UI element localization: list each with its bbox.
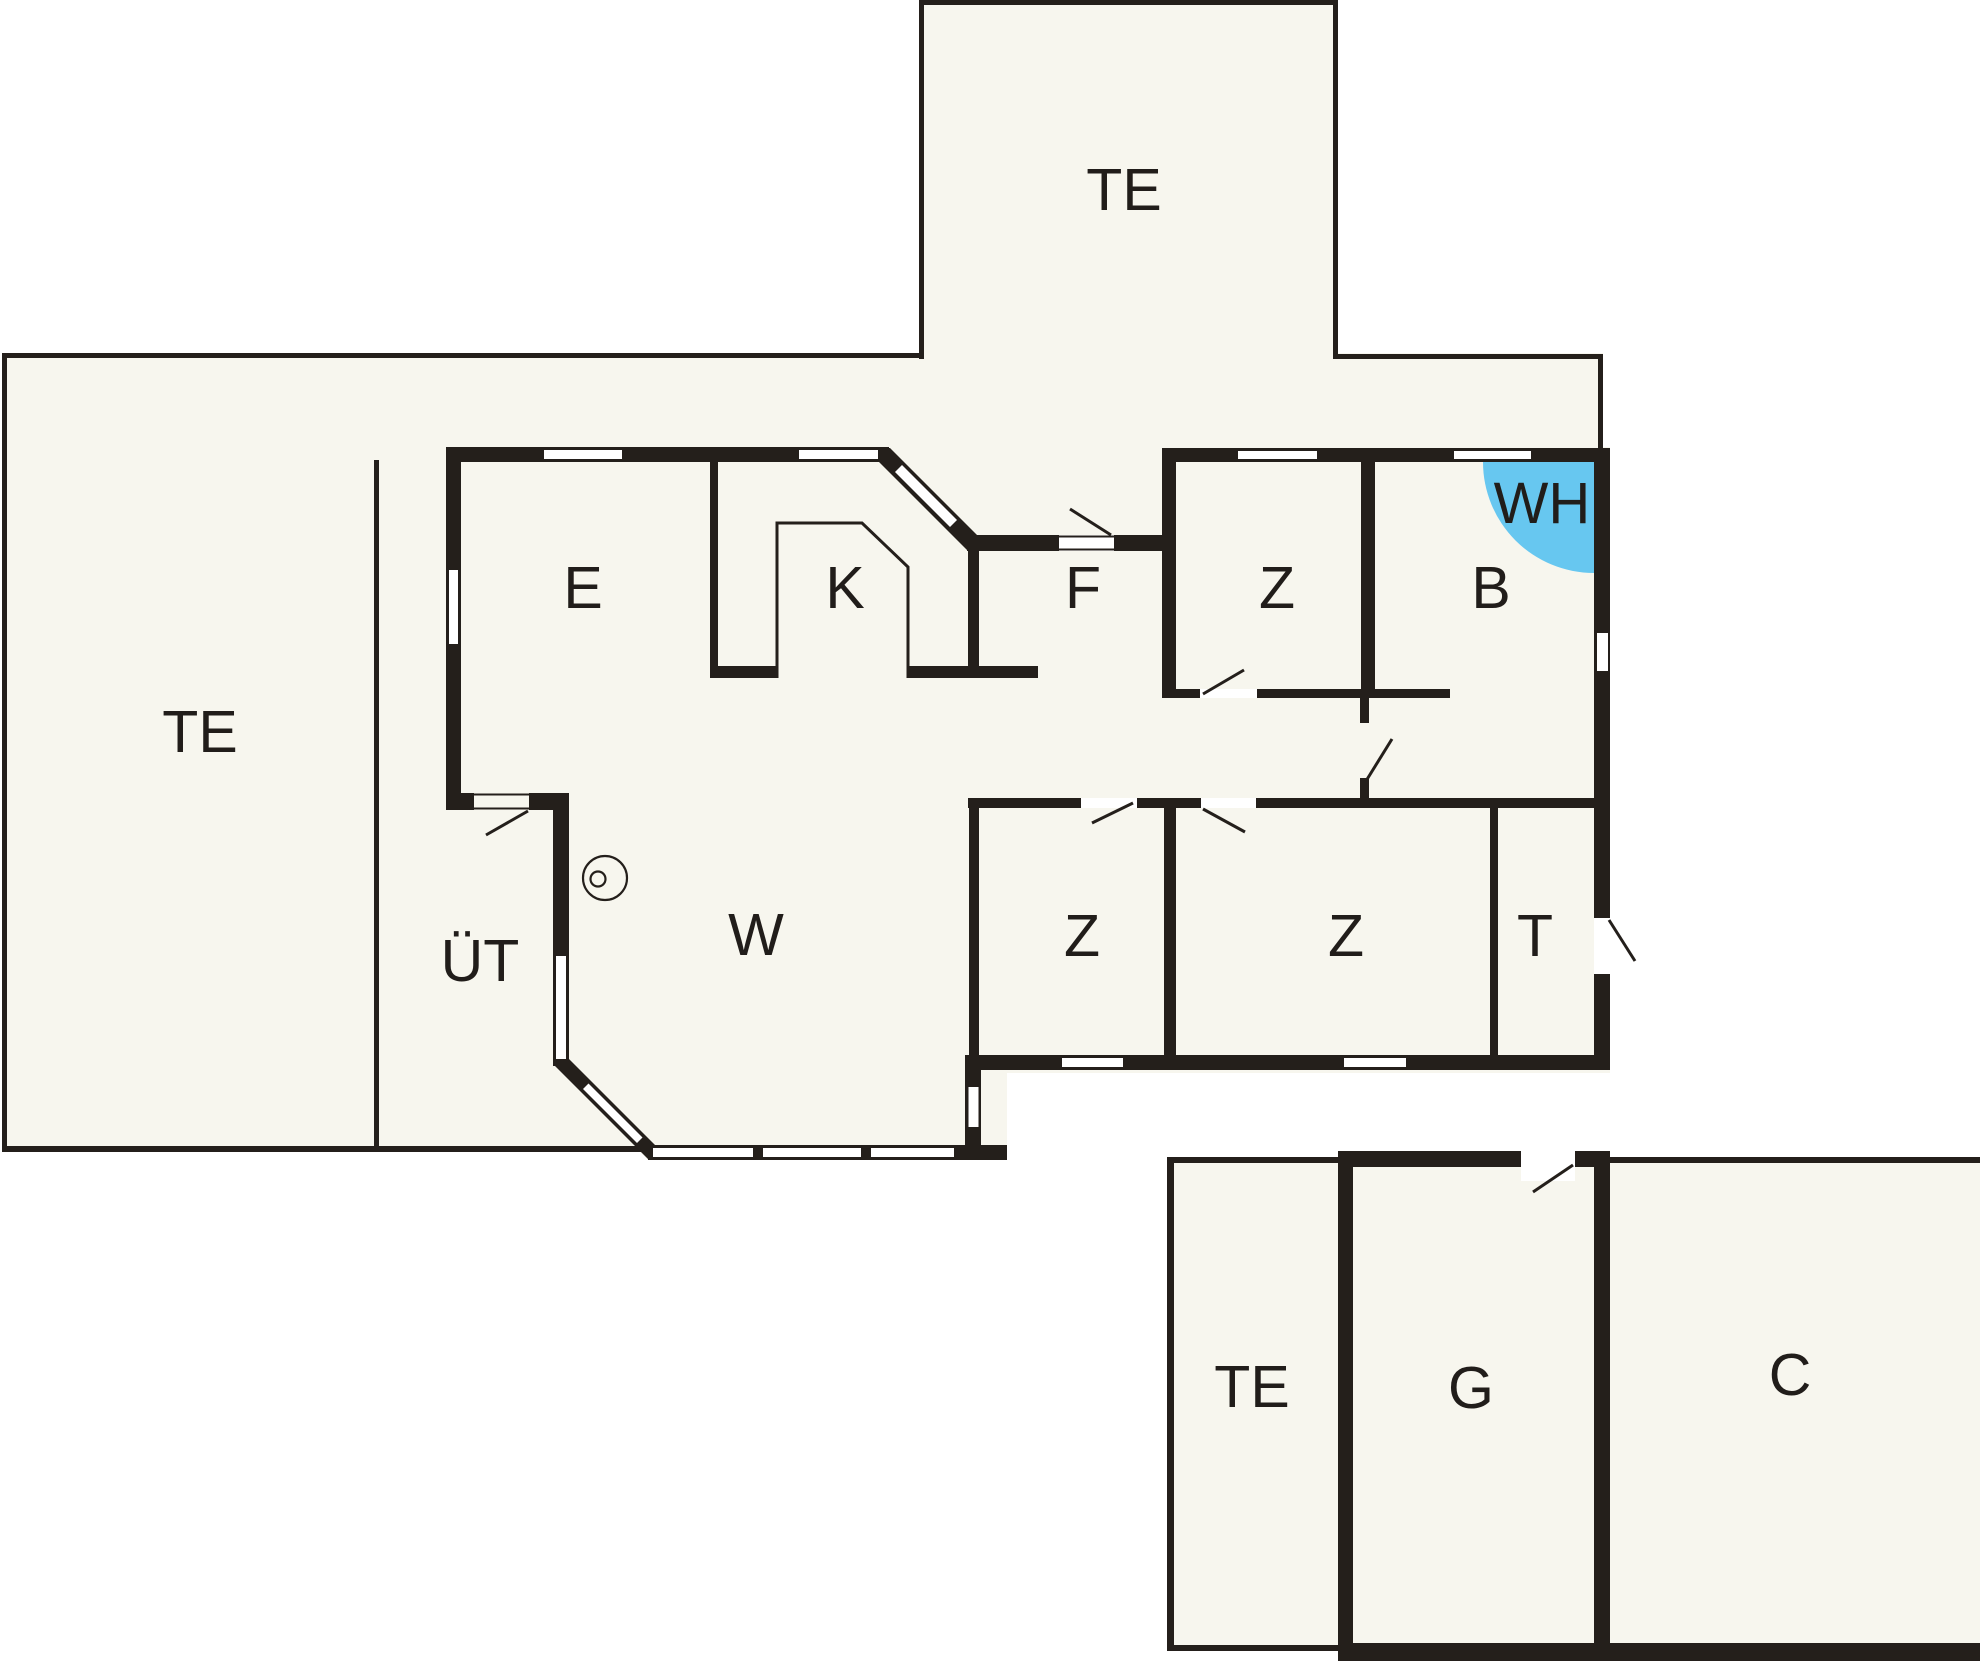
- svg-text:B: B: [1471, 555, 1510, 621]
- svg-text:T: T: [1517, 903, 1553, 969]
- svg-text:Z: Z: [1328, 903, 1364, 969]
- svg-text:TE: TE: [1086, 157, 1161, 223]
- svg-text:W: W: [728, 902, 784, 968]
- svg-text:C: C: [1769, 1342, 1812, 1408]
- svg-text:TE: TE: [162, 699, 237, 765]
- svg-text:Z: Z: [1064, 903, 1100, 969]
- svg-text:K: K: [825, 555, 864, 621]
- svg-text:Z: Z: [1259, 555, 1295, 621]
- svg-text:ÜT: ÜT: [441, 928, 520, 994]
- svg-text:G: G: [1448, 1355, 1494, 1421]
- svg-text:WH: WH: [1494, 471, 1591, 536]
- svg-text:E: E: [563, 555, 602, 621]
- svg-text:F: F: [1065, 555, 1101, 621]
- svg-text:TE: TE: [1214, 1354, 1289, 1420]
